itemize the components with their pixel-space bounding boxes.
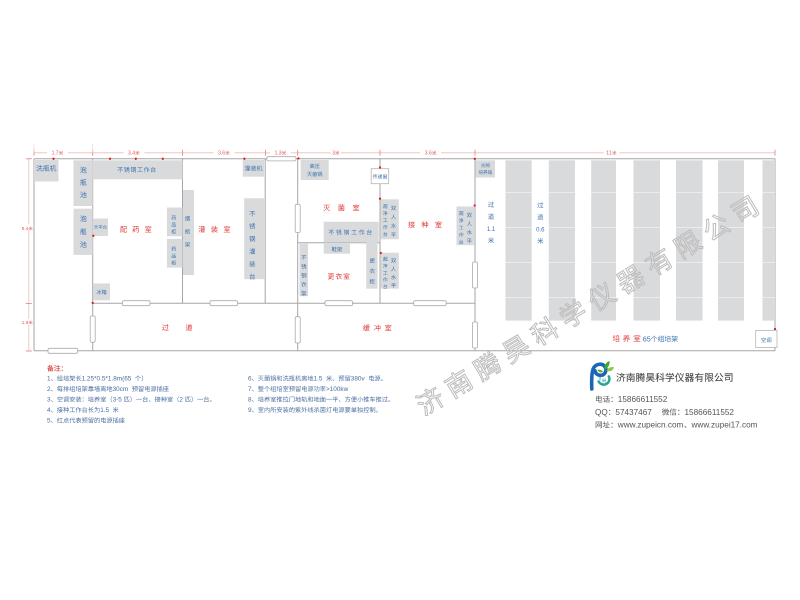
svg-text:15866611552: 15866611552 <box>618 395 668 404</box>
svg-text:11: 11 <box>606 151 611 157</box>
svg-text:9: 9 <box>248 407 252 414</box>
svg-text:3.4: 3.4 <box>128 151 135 157</box>
svg-text:1.5: 1.5 <box>100 407 109 414</box>
svg-text:1.5: 1.5 <box>314 376 323 383</box>
svg-text:1.7: 1.7 <box>52 151 59 157</box>
svg-text:www.zupeicn.com: www.zupeicn.com <box>617 421 684 430</box>
svg-text:15866611552: 15866611552 <box>685 408 735 417</box>
svg-text:T: T <box>599 377 602 383</box>
svg-text:380v: 380v <box>351 376 366 383</box>
svg-text:1: 1 <box>47 376 51 383</box>
svg-text:8: 8 <box>248 397 252 404</box>
svg-text:57437467: 57437467 <box>615 408 652 417</box>
svg-text:5: 5 <box>47 418 51 425</box>
svg-text:5.4: 5.4 <box>22 226 29 231</box>
svg-text:6: 6 <box>248 376 252 383</box>
svg-text:2: 2 <box>47 386 51 393</box>
svg-text:QQ: QQ <box>595 408 608 417</box>
svg-text:H: H <box>602 378 606 384</box>
svg-text:7: 7 <box>248 386 252 393</box>
svg-text:1.25*0.5*1.8m(65: 1.25*0.5*1.8m(65 <box>82 376 132 383</box>
svg-text:1.3: 1.3 <box>275 151 282 157</box>
svg-text:0.6: 0.6 <box>536 227 545 233</box>
svg-text:>100kw: >100kw <box>326 386 349 393</box>
svg-text:1.1: 1.1 <box>487 227 496 233</box>
svg-text:3: 3 <box>332 151 335 157</box>
svg-text:3: 3 <box>47 397 51 404</box>
svg-text:3-5: 3-5 <box>113 397 123 404</box>
svg-text:1.8: 1.8 <box>22 320 29 325</box>
svg-text:2: 2 <box>179 397 183 404</box>
svg-text:www.zupei17.com: www.zupei17.com <box>691 421 758 430</box>
svg-text:30cm: 30cm <box>113 386 129 393</box>
svg-text:3.6: 3.6 <box>218 151 225 157</box>
svg-text:4: 4 <box>47 407 51 414</box>
svg-text:65: 65 <box>643 334 651 343</box>
svg-text:3.6: 3.6 <box>425 151 432 157</box>
